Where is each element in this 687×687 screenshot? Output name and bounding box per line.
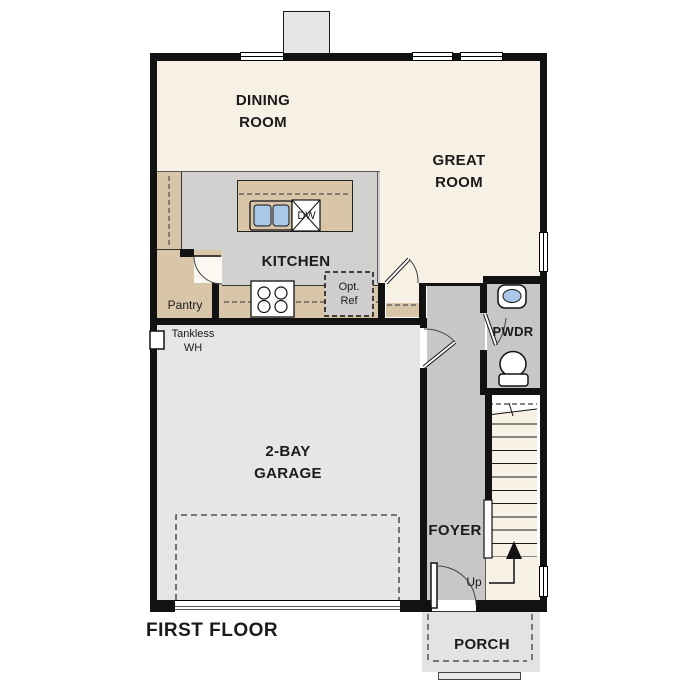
kitchen-sink-icon xyxy=(250,201,292,230)
pantry-door xyxy=(194,256,222,284)
floor-title: FIRST FLOOR xyxy=(146,620,366,642)
stairs-up-label: Up xyxy=(462,575,486,589)
garage-door-clearance xyxy=(176,515,399,600)
floor-plan: DINING ROOM GREAT ROOM KITCHEN 2-BAY GAR… xyxy=(0,0,687,687)
tankless-wh-label: Tankless WH xyxy=(164,327,222,355)
tankless-water-heater-box xyxy=(150,331,164,349)
dishwasher-label: DW xyxy=(293,209,320,223)
garage-label: 2-BAY GARAGE xyxy=(238,441,338,485)
toilet-icon xyxy=(499,352,528,387)
stairs-direction-arrow xyxy=(489,541,522,583)
garage-entry-door xyxy=(424,329,455,367)
porch-label: PORCH xyxy=(432,634,532,656)
kitchen-label: KITCHEN xyxy=(226,251,366,273)
closet-door xyxy=(386,259,418,283)
great-room-label: GREAT ROOM xyxy=(414,150,504,194)
fixtures-layer xyxy=(0,0,687,687)
pantry-label: Pantry xyxy=(160,298,210,312)
powder-label: PWDR xyxy=(488,324,538,339)
dining-room-label: DINING ROOM xyxy=(218,90,308,134)
opt-ref-label: Opt. Ref xyxy=(334,280,364,308)
foyer-label: FOYER xyxy=(415,520,495,542)
range-icon xyxy=(251,281,294,317)
powder-sink-icon xyxy=(498,285,526,308)
stairs-break-line xyxy=(488,403,537,416)
